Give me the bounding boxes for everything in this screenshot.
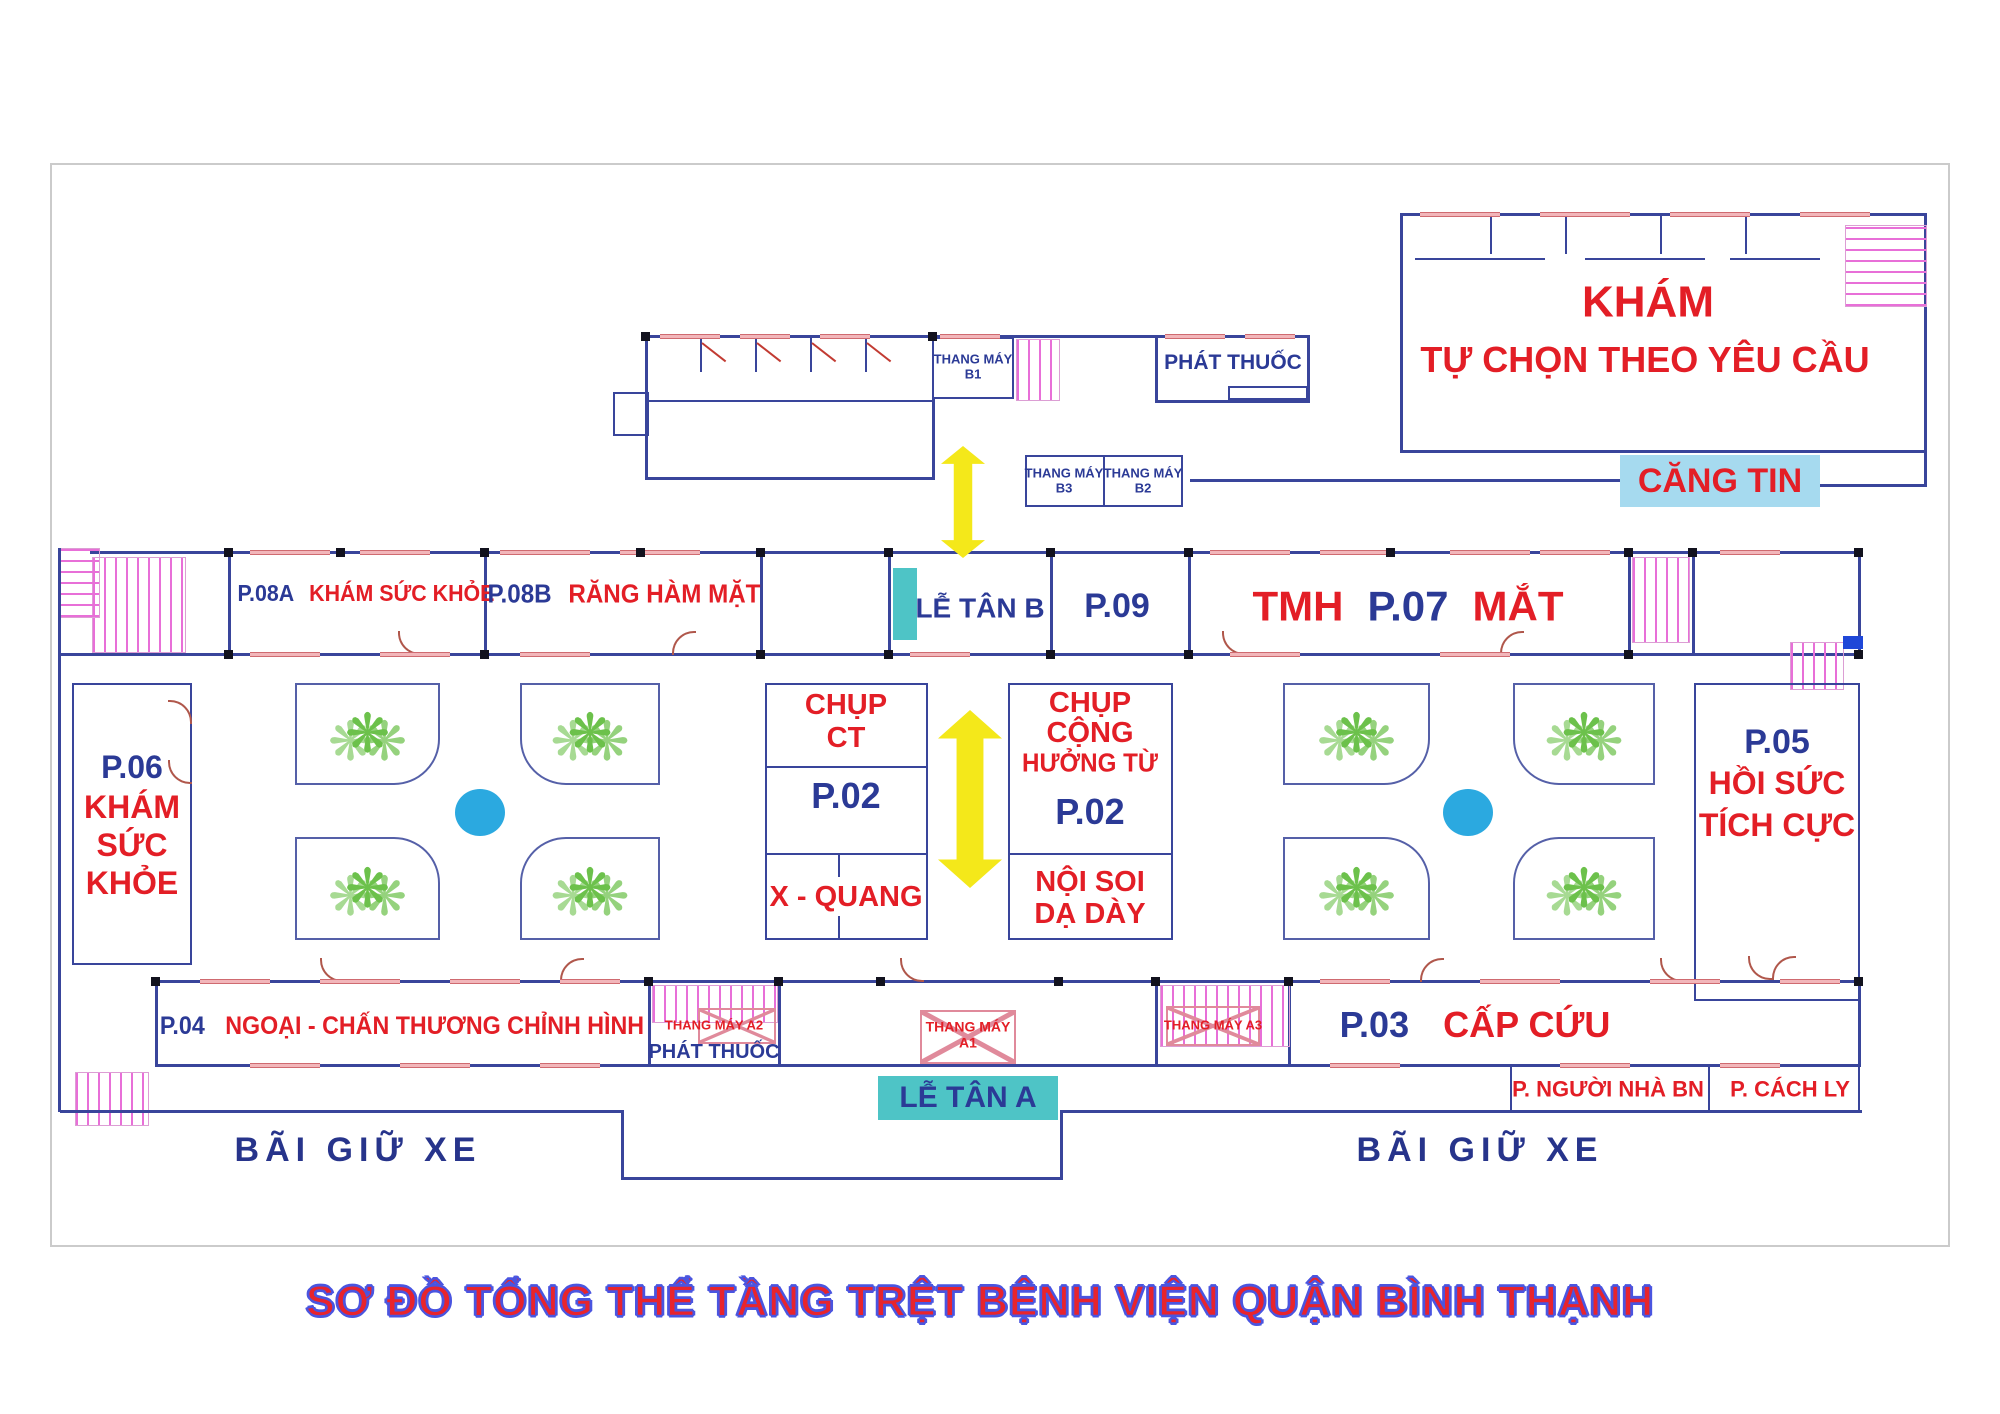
- column-marker: [928, 332, 937, 341]
- wall-segment: [1660, 216, 1662, 254]
- room-p04-label: P.04 NGOẠI - CHẤN THƯƠNG CHỈNH HÌNH: [160, 1012, 644, 1040]
- wall-segment: [155, 980, 158, 1067]
- stairs-b1-icon: [1016, 339, 1060, 401]
- room-p03-label: P.03 CẤP CỨU: [1340, 1005, 1611, 1045]
- column-marker: [224, 650, 233, 659]
- room-p04-name: NGOẠI - CHẤN THƯƠNG CHỈNH HÌNH: [225, 1012, 644, 1040]
- stairs-east-icon: [1632, 557, 1690, 643]
- wall-segment: [1692, 555, 1695, 653]
- room-p05-line2: TÍCH CỰC: [1699, 808, 1855, 844]
- wall-segment: [645, 400, 935, 402]
- wall-segment: [1155, 980, 1158, 1067]
- plant-icon: ❋: [1334, 862, 1379, 916]
- page-title: SƠ ĐỒ TỔNG THỂ TẦNG TRỆT BỆNH VIỆN QUẬN …: [306, 1278, 1654, 1327]
- mri-code: P.02: [1055, 792, 1124, 832]
- room-p03-name: CẤP CỨU: [1443, 1005, 1610, 1045]
- wall-segment: [1628, 555, 1631, 653]
- mri-line2: CỘNG: [1047, 717, 1134, 749]
- pharmacy-top-label: PHÁT THUỐC: [1164, 351, 1302, 375]
- room-p08b-label: P.08B RĂNG HÀM MẶT: [488, 579, 761, 608]
- wall-fill-segment: [620, 550, 700, 555]
- column-marker: [1854, 548, 1863, 557]
- column-marker: [1854, 650, 1863, 659]
- column-marker: [1151, 977, 1160, 986]
- column-marker: [151, 977, 160, 986]
- lobby-a-label: LỄ TÂN A: [899, 1081, 1036, 1115]
- wall-fill-segment: [250, 1063, 320, 1068]
- column-marker: [1624, 548, 1633, 557]
- room-p06-line1: KHÁM: [84, 790, 180, 826]
- column-marker: [480, 650, 489, 659]
- pharmacy-bottom-label: PHÁT THUỐC: [648, 1041, 779, 1063]
- wall-fill-segment: [1560, 1063, 1630, 1068]
- wall-segment: [1190, 479, 1620, 482]
- imaging-line1: CHỤP: [805, 689, 887, 721]
- wall-fill-segment: [820, 334, 870, 339]
- column-marker: [1046, 548, 1055, 557]
- wall-segment: [838, 916, 840, 940]
- wall-fill-segment: [320, 979, 400, 984]
- column-marker: [1046, 650, 1055, 659]
- planter: ❋: [295, 837, 440, 940]
- wall-fill-segment: [360, 550, 430, 555]
- room-p05-line1: HỒI SỨC: [1709, 766, 1846, 802]
- elevator-a2-label: THANG MÁY A2: [665, 1019, 763, 1034]
- column-marker: [336, 548, 345, 557]
- wall-fill-segment: [1165, 334, 1225, 339]
- wall-fill-segment: [1440, 652, 1510, 657]
- planter: ❋: [1513, 837, 1655, 940]
- plant-icon: ❋: [345, 862, 390, 916]
- parking-right-label: BÃI GIỮ XE: [1357, 1131, 1604, 1169]
- plant-icon: ❋: [1561, 707, 1606, 761]
- wall-segment: [765, 766, 928, 768]
- wall-segment: [1155, 335, 1158, 403]
- wall-fill-segment: [400, 1063, 470, 1068]
- room-p05-code: P.05: [1744, 723, 1810, 761]
- wall-segment: [1490, 216, 1492, 254]
- wall-segment: [1061, 1110, 1862, 1113]
- door-marker: [1843, 636, 1863, 649]
- wall-fill-segment: [200, 979, 270, 984]
- stairs-wing-icon: [1845, 225, 1927, 307]
- wall-fill-segment: [1720, 1063, 1780, 1068]
- wall-fill-segment: [1480, 979, 1560, 984]
- column-marker: [224, 548, 233, 557]
- column-marker: [1624, 650, 1633, 659]
- wall-segment: [1400, 213, 1403, 453]
- room-p08b-name: RĂNG HÀM MẶT: [568, 579, 760, 608]
- imaging-line2: CT: [827, 722, 866, 754]
- column-marker: [876, 977, 885, 986]
- wall-segment: [58, 548, 61, 1112]
- family-room-label: P. NGƯỜI NHÀ BN: [1512, 1078, 1704, 1103]
- imaging-code: P.02: [811, 776, 880, 816]
- room-p09-label: P.09: [1084, 587, 1150, 625]
- wall-segment: [1415, 258, 1545, 260]
- wall-fill-segment: [940, 334, 1000, 339]
- room-p07-label: TMH P.07 MẮT: [1253, 582, 1564, 629]
- wall-fill-segment: [520, 652, 590, 657]
- room-p06-line2: SỨC: [97, 828, 168, 864]
- room-p08a-label: P.08A KHÁM SỨC KHỎE: [238, 581, 495, 607]
- lobby-b-desk: [893, 568, 917, 640]
- plant-icon: ❋: [1561, 862, 1606, 916]
- room-outline: [613, 392, 649, 436]
- lobby-b-label: LỄ TÂN B: [915, 592, 1044, 623]
- wall-segment: [1565, 216, 1567, 254]
- column-marker: [480, 548, 489, 557]
- planter: ❋: [1283, 837, 1430, 940]
- wall-fill-segment: [1320, 979, 1390, 984]
- wing-name-line1: KHÁM: [1582, 277, 1714, 326]
- wall-segment: [838, 855, 840, 877]
- wall-fill-segment: [1800, 212, 1870, 217]
- column-marker: [774, 977, 783, 986]
- wall-segment: [1924, 453, 1927, 487]
- wall-segment: [1858, 980, 1861, 1067]
- room-p08b-code: P.08B: [488, 579, 552, 608]
- canteen-label: CĂNG TIN: [1638, 462, 1802, 501]
- wall-fill-segment: [250, 652, 320, 657]
- column-marker: [884, 650, 893, 659]
- wall-fill-segment: [1720, 550, 1780, 555]
- wall-fill-segment: [1650, 979, 1720, 984]
- wall-fill-segment: [540, 1063, 600, 1068]
- mri-endo2: DẠ DÀY: [1034, 898, 1145, 930]
- plant-icon: ❋: [345, 707, 390, 761]
- column-marker: [641, 332, 650, 341]
- planter: ❋: [1283, 683, 1430, 785]
- wall-fill-segment: [1320, 550, 1390, 555]
- wall-segment: [1050, 555, 1053, 653]
- wall-fill-segment: [910, 652, 970, 657]
- wall-segment: [1816, 484, 1927, 487]
- wall-segment: [1708, 1064, 1710, 1112]
- wall-segment: [228, 555, 231, 653]
- mri-line3: HƯỞNG TỪ: [1022, 748, 1158, 777]
- column-marker: [1854, 977, 1863, 986]
- wall-segment: [621, 1177, 1063, 1180]
- column-marker: [644, 977, 653, 986]
- wall-fill-segment: [660, 334, 720, 339]
- wall-segment: [1730, 258, 1820, 260]
- wall-segment: [645, 477, 935, 480]
- room-p03-code: P.03: [1340, 1005, 1409, 1045]
- wall-segment: [888, 555, 891, 653]
- wall-fill-segment: [1670, 212, 1750, 217]
- column-marker: [1386, 548, 1395, 557]
- wall-fill-segment: [1330, 1063, 1400, 1068]
- imaging-xray-label: X - QUANG: [769, 881, 922, 913]
- elevator-b2-label: THANG MÁY B2: [1104, 466, 1183, 495]
- lobby-a-box: LỄ TÂN A: [878, 1076, 1058, 1120]
- fountain-west-icon: [455, 789, 505, 836]
- wall-fill-segment: [1420, 212, 1500, 217]
- wall-fill-segment: [1450, 550, 1530, 555]
- parking-left-label: BÃI GIỮ XE: [235, 1131, 482, 1169]
- room-p08a-code: P.08A: [238, 581, 295, 607]
- wall-segment: [1188, 555, 1191, 653]
- wall-segment: [60, 1110, 623, 1113]
- room-p06-line3: KHỎE: [86, 866, 178, 902]
- room-p06-code: P.06: [101, 750, 163, 786]
- mri-endo1: NỘI SOI: [1035, 866, 1145, 898]
- column-marker: [1184, 650, 1193, 659]
- wing-name-line2: TỰ CHỌN THEO YÊU CẦU: [1420, 340, 1869, 380]
- wall-segment: [155, 980, 1860, 983]
- wall-fill-segment: [740, 334, 790, 339]
- column-marker: [756, 548, 765, 557]
- wall-fill-segment: [1540, 550, 1610, 555]
- wall-segment: [1008, 853, 1173, 855]
- wall-segment: [1060, 1110, 1063, 1180]
- canteen-box: CĂNG TIN: [1620, 455, 1820, 507]
- room-p04-code: P.04: [160, 1012, 205, 1040]
- wall-fill-segment: [1230, 652, 1300, 657]
- elevator-a1-label: THANG MÁY A1: [926, 1019, 1011, 1050]
- stairs-southwest-icon: [75, 1072, 149, 1126]
- wall-fill-segment: [560, 979, 620, 984]
- column-marker: [1688, 548, 1697, 557]
- wall-fill-segment: [1210, 550, 1290, 555]
- stairs-far-west-icon: [58, 548, 100, 618]
- wall-fill-segment: [1780, 979, 1840, 984]
- room-outline: [1228, 386, 1308, 400]
- elevator-b1-label: THANG MÁY B1: [934, 352, 1013, 381]
- plant-icon: ❋: [1334, 707, 1379, 761]
- wall-segment: [621, 1110, 624, 1180]
- wall-fill-segment: [1540, 212, 1630, 217]
- wall-fill-segment: [450, 979, 520, 984]
- wall-segment: [1155, 400, 1310, 403]
- column-marker: [756, 650, 765, 659]
- mri-line1: CHỤP: [1049, 687, 1131, 719]
- wall-fill-segment: [380, 652, 450, 657]
- planter: ❋: [520, 837, 660, 940]
- planter: ❋: [1513, 683, 1655, 785]
- elevator-b3-label: THANG MÁY B3: [1025, 466, 1104, 495]
- wall-segment: [1585, 258, 1705, 260]
- planter: ❋: [295, 683, 440, 785]
- isolation-room-label: P. CÁCH LY: [1730, 1078, 1850, 1103]
- elevator-a3-label: THANG MÁY A3: [1164, 1019, 1262, 1034]
- plant-icon: ❋: [567, 707, 612, 761]
- column-marker: [1054, 977, 1063, 986]
- wall-segment: [1400, 450, 1927, 453]
- room-p07-code: P.07: [1368, 582, 1449, 629]
- planter: ❋: [520, 683, 660, 785]
- wall-segment: [765, 853, 928, 855]
- room-p08a-name: KHÁM SỨC KHỎE: [309, 581, 494, 607]
- wall-fill-segment: [500, 550, 590, 555]
- column-marker: [1184, 548, 1193, 557]
- wall-segment: [1745, 216, 1747, 254]
- wall-fill-segment: [250, 550, 330, 555]
- plant-icon: ❋: [567, 862, 612, 916]
- fountain-east-icon: [1443, 789, 1493, 836]
- room-p07-prefix: TMH: [1253, 582, 1344, 629]
- wall-fill-segment: [1245, 334, 1295, 339]
- room-p07-suffix: MẮT: [1473, 582, 1564, 629]
- stairs-west-icon: [92, 557, 186, 653]
- column-marker: [884, 548, 893, 557]
- column-marker: [1284, 977, 1293, 986]
- column-marker: [636, 548, 645, 557]
